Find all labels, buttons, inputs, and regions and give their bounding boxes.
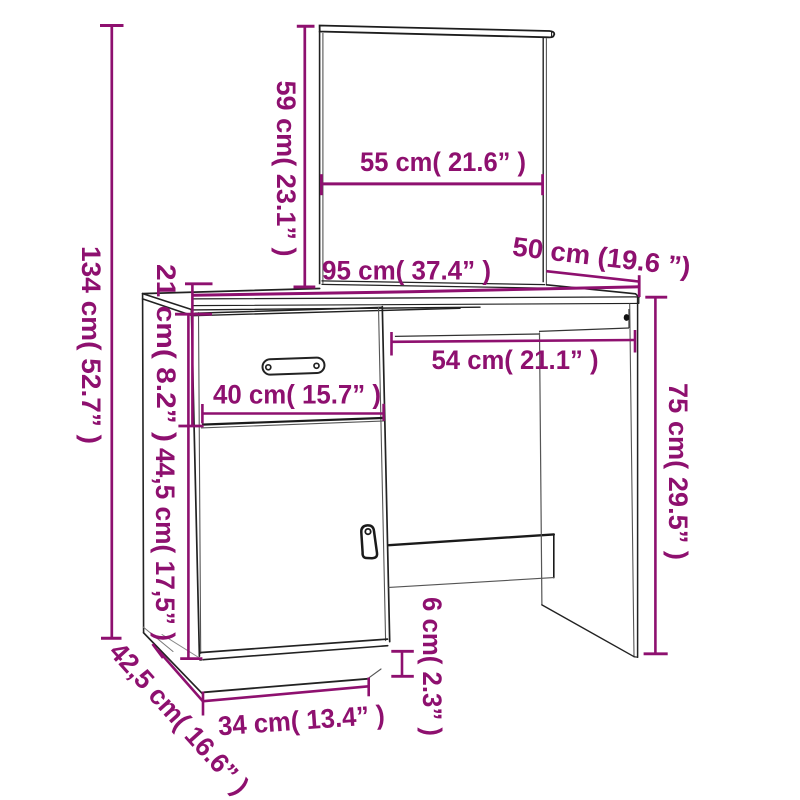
svg-text:54 cm( 21.1” ): 54 cm( 21.1” ) xyxy=(432,345,599,375)
svg-text:55 cm( 21.6” ): 55 cm( 21.6” ) xyxy=(360,147,526,177)
svg-text:95 cm( 37.4” ): 95 cm( 37.4” ) xyxy=(322,255,491,285)
svg-text:40 cm( 15.7” ): 40 cm( 15.7” ) xyxy=(213,379,381,409)
svg-text:134 cm( 52.7” ): 134 cm( 52.7” ) xyxy=(76,246,106,444)
svg-text:6 cm( 2.3” ): 6 cm( 2.3” ) xyxy=(417,597,447,736)
svg-text:21 cm( 8.2” ): 21 cm( 8.2” ) xyxy=(151,264,181,442)
svg-text:44,5 cm( 17,5” ): 44,5 cm( 17,5” ) xyxy=(150,448,180,641)
svg-text:75 cm( 29.5” ): 75 cm( 29.5” ) xyxy=(663,383,693,560)
svg-text:59 cm( 23.1” ): 59 cm( 23.1” ) xyxy=(271,81,301,257)
